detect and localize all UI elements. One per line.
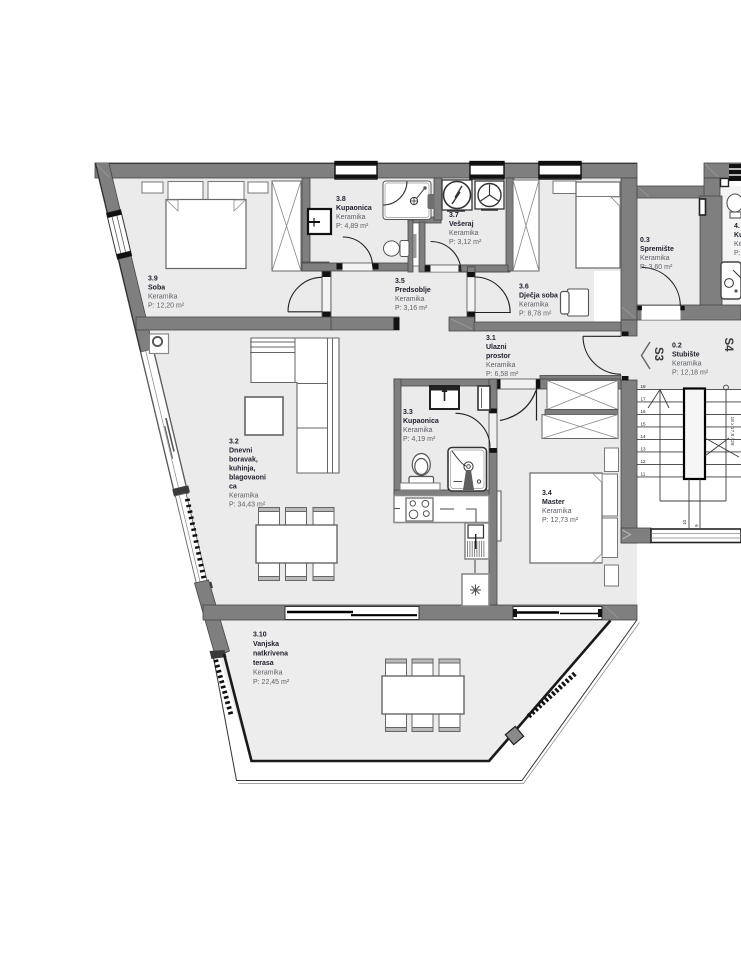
svg-text:Keramika: Keramika [542, 508, 572, 515]
svg-text:Keramika: Keramika [403, 427, 433, 434]
svg-text:3.6: 3.6 [519, 284, 529, 291]
svg-text:Dnevni: Dnevni [229, 448, 252, 455]
svg-text:P: 12,18 m²: P: 12,18 m² [672, 370, 709, 377]
svg-text:0.3: 0.3 [640, 237, 650, 244]
svg-text:P: 4,89 m²: P: 4,89 m² [336, 223, 369, 230]
svg-text:3.10: 3.10 [253, 632, 267, 639]
svg-text:3.7: 3.7 [449, 212, 459, 219]
svg-text:15: 15 [641, 422, 647, 427]
svg-text:Vanjska: Vanjska [253, 641, 279, 648]
svg-text:P: 4,19 m²: P: 4,19 m² [403, 436, 436, 443]
svg-text:18: 18 [641, 384, 647, 389]
svg-text:0.2: 0.2 [672, 343, 682, 350]
svg-text:Keramika: Keramika [148, 294, 178, 301]
svg-text:Kupaonica: Kupaonica [336, 205, 372, 212]
svg-text:P: 22,45 m²: P: 22,45 m² [253, 679, 290, 686]
svg-text:Keramika: Keramika [336, 214, 366, 221]
svg-text:Keramika: Keramika [640, 255, 670, 262]
svg-text:9: 9 [694, 524, 699, 527]
svg-text:P: 6,58 m²: P: 6,58 m² [486, 371, 519, 378]
svg-text:P: 3,60 m²: P: 3,60 m² [640, 264, 673, 271]
svg-text:10: 10 [682, 519, 687, 525]
svg-text:3.2: 3.2 [229, 439, 239, 446]
svg-text:P: 34,43 m²: P: 34,43 m² [229, 502, 266, 509]
svg-text:Keramika: Keramika [395, 296, 425, 303]
svg-text:S4: S4 [722, 338, 734, 353]
svg-text:Keramika: Keramika [519, 302, 549, 309]
svg-text:P: 3,16 m²: P: 3,16 m² [395, 305, 428, 312]
svg-text:4.: 4. [734, 223, 740, 230]
svg-text:Ulazni: Ulazni [486, 344, 507, 351]
svg-text:kuhinja,: kuhinja, [229, 466, 256, 473]
svg-text:3.3: 3.3 [403, 409, 413, 416]
svg-text:Ku: Ku [734, 232, 741, 239]
svg-text:blagovaoni: blagovaoni [229, 475, 266, 482]
svg-text:P: 8,78 m²: P: 8,78 m² [519, 311, 552, 318]
svg-text:3.1: 3.1 [486, 335, 496, 342]
svg-text:terasa: terasa [253, 660, 274, 667]
svg-text:ca: ca [229, 484, 237, 491]
svg-text:Keramika: Keramika [253, 670, 283, 677]
svg-text:16: 16 [641, 409, 647, 414]
svg-text:3.8: 3.8 [336, 196, 346, 203]
svg-text:Stubište: Stubište [672, 352, 700, 359]
svg-text:3.5: 3.5 [395, 278, 405, 285]
svg-text:Predsoblje: Predsoblje [395, 287, 431, 294]
svg-text:13: 13 [641, 447, 647, 452]
svg-text:17: 17 [641, 397, 647, 402]
svg-text:3.4: 3.4 [542, 490, 552, 497]
svg-text:S3: S3 [652, 347, 664, 361]
svg-text:P: 3,12 m²: P: 3,12 m² [449, 239, 482, 246]
svg-text:natkrivena: natkrivena [253, 651, 288, 658]
svg-text:Keramika: Keramika [229, 493, 259, 500]
svg-text:12: 12 [641, 459, 647, 464]
svg-text:18 x 17,8 / 28: 18 x 17,8 / 28 [729, 416, 735, 445]
svg-text:Kupaonica: Kupaonica [403, 418, 439, 425]
svg-text:Master: Master [542, 499, 565, 506]
svg-text:Keramika: Keramika [672, 361, 702, 368]
svg-text:prostor: prostor [486, 353, 511, 360]
svg-text:11: 11 [641, 472, 646, 477]
svg-text:14: 14 [641, 434, 647, 439]
svg-text:boravak,: boravak, [229, 457, 258, 464]
svg-text:P: 12,73 m²: P: 12,73 m² [542, 517, 579, 524]
svg-text:Vešeraj: Vešeraj [449, 221, 474, 228]
svg-text:3.9: 3.9 [148, 276, 158, 283]
svg-text:Soba: Soba [148, 285, 165, 292]
svg-text:P: 12,20 m²: P: 12,20 m² [148, 303, 185, 310]
svg-text:Dječja soba: Dječja soba [519, 293, 558, 300]
svg-text:Spremište: Spremište [640, 246, 674, 253]
svg-text:Keramika: Keramika [449, 230, 479, 237]
svg-text:P:: P: [734, 250, 741, 257]
svg-text:Keramika: Keramika [486, 362, 516, 369]
svg-text:Ke: Ke [734, 241, 741, 248]
